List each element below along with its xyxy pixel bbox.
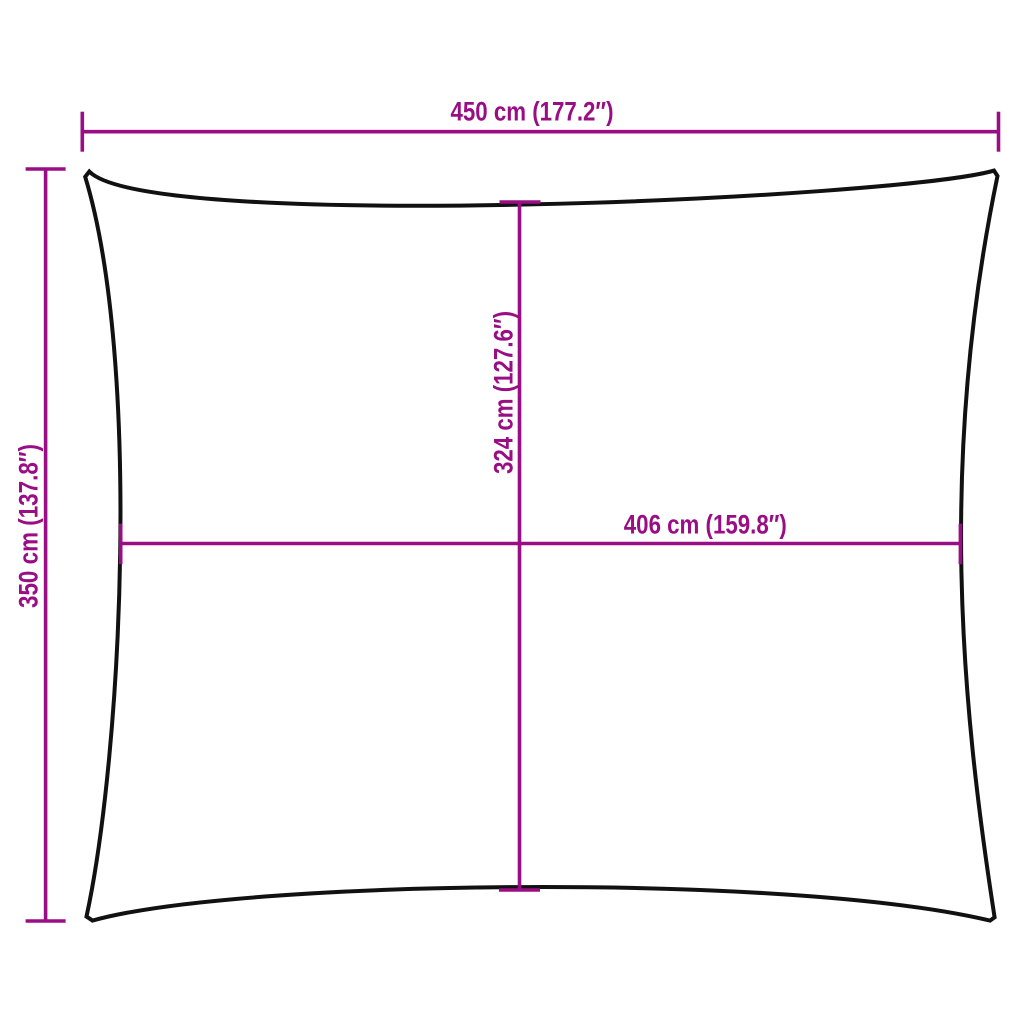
- svg-text:450 cm (177.2″): 450 cm (177.2″): [451, 97, 614, 127]
- svg-text:406 cm (159.8″): 406 cm (159.8″): [624, 510, 787, 540]
- svg-text:324 cm (127.6″): 324 cm (127.6″): [489, 311, 519, 474]
- svg-text:350 cm (137.8″): 350 cm (137.8″): [14, 444, 44, 608]
